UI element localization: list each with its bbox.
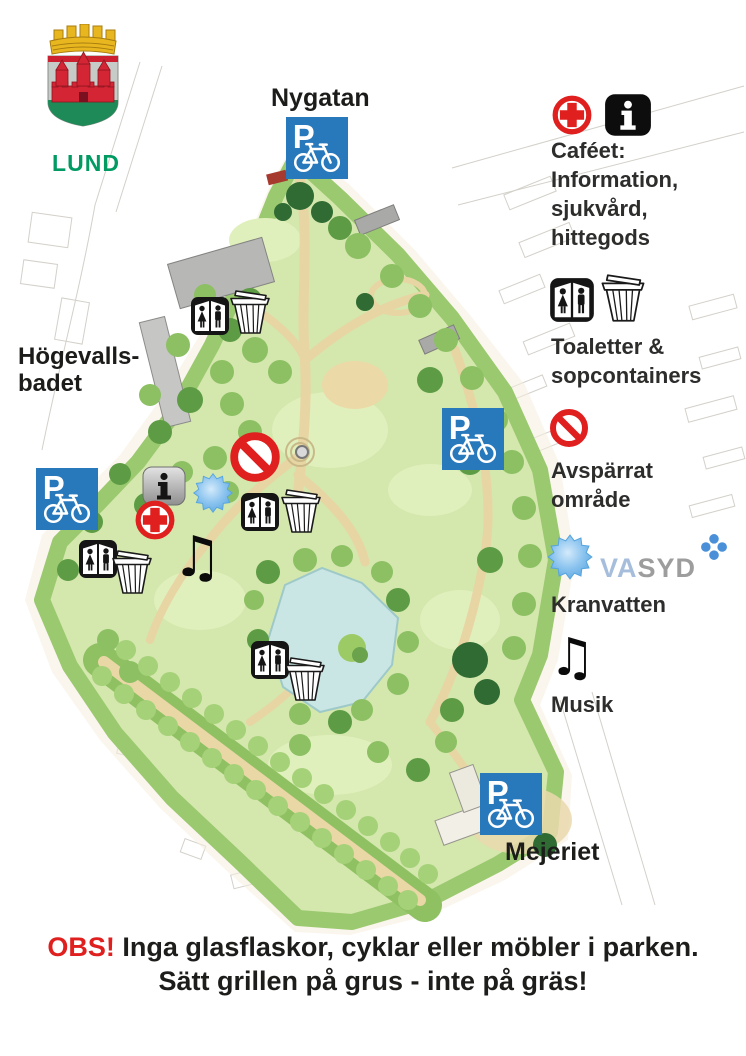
toilet-icon-north [190,296,230,336]
notice-line1: Inga glasflaskor, cyklar eller möbler i … [122,932,698,962]
notice-warning: OBS! [47,932,115,962]
lund-wordmark: LUND [40,150,132,177]
waste-container-icon-south [281,655,329,703]
park-rules-notice: OBS! Inga glasflaskor, cyklar eller möbl… [0,930,746,998]
legend-water-text: Kranvatten [551,590,666,619]
lund-crest-graphic [40,24,126,148]
legend-restricted-text: Avspärrat område [551,456,653,514]
legend-music-text: Musik [551,690,613,719]
street-label-nygatan: Nygatan [271,84,370,112]
bicycle-parking-sign-north [286,117,348,179]
tap-water-icon-map [191,471,235,515]
notice-line2: Sätt grillen på grus - inte på gräs! [0,964,746,998]
vasyd-clover-icon [700,533,728,561]
bicycle-parking-sign-south [480,773,542,835]
bicycle-parking-sign-east [442,408,504,470]
first-aid-icon-map [134,499,176,541]
first-aid-icon-legend [551,94,593,136]
lund-coat-of-arms: LUND [40,24,132,177]
legend-cafe-text: Caféet: Information, sjukvård, hittegods [551,136,678,252]
waste-container-icon-legend [597,272,649,324]
bicycle-parking-sign-west [36,468,98,530]
place-label-hogevallsbadet: Högevalls- badet [18,344,139,398]
music-icon-map: ♫ [172,530,222,586]
info-icon-legend [604,93,652,137]
legend-toilets-text: Toaletter & sopcontainers [551,332,701,390]
place-label-mejeriet: Mejeriet [505,838,599,866]
waste-container-icon-center [277,487,325,535]
no-entry-icon-map [229,431,281,483]
vasyd-logo: VASYD [600,553,696,584]
waste-container-icon-west [108,548,156,596]
music-icon-legend: ♫ [549,632,596,684]
toilet-icon-center [240,492,280,532]
tap-water-icon-legend [545,532,595,582]
toilet-icon-legend [549,277,595,323]
no-entry-icon-legend [549,408,589,448]
waste-container-icon-north [226,288,274,336]
